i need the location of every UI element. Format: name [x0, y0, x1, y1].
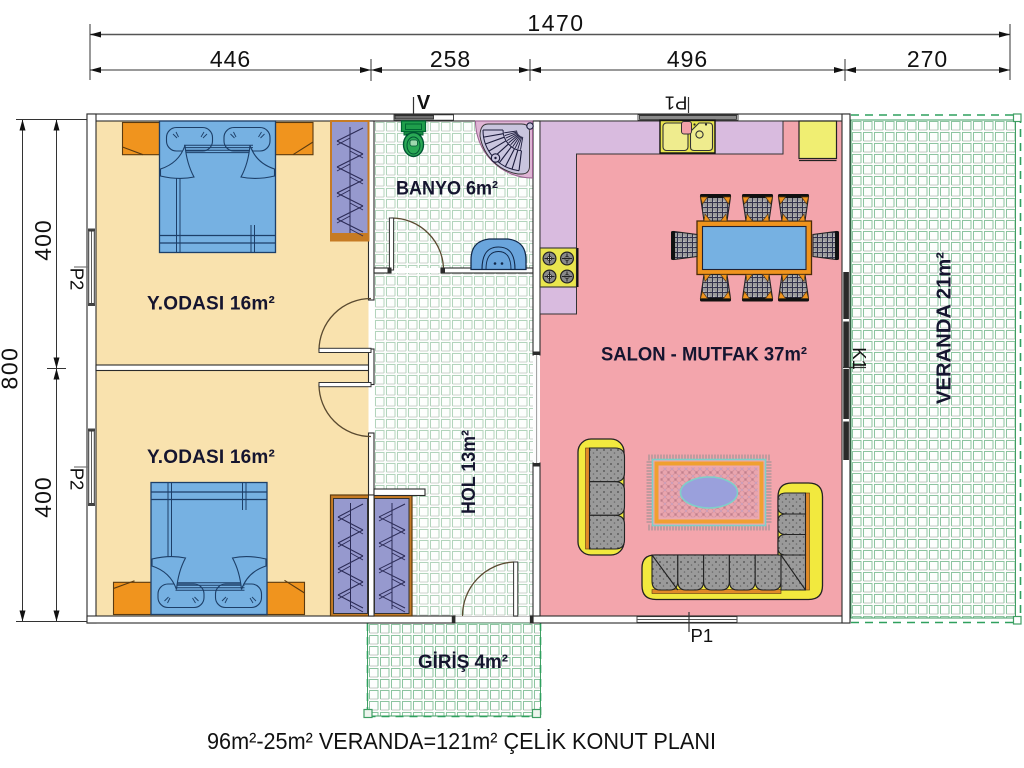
svg-text:GİRİŞ 4m²: GİRİŞ 4m² [418, 652, 508, 673]
svg-text:Y.ODASI 16m²: Y.ODASI 16m² [147, 294, 275, 315]
svg-text:1470: 1470 [527, 10, 584, 36]
svg-text:446: 446 [210, 46, 251, 72]
svg-text:K1: K1 [849, 347, 870, 370]
svg-text:SALON - MUTFAK 37m²: SALON - MUTFAK 37m² [601, 345, 807, 366]
svg-text:800: 800 [0, 347, 23, 390]
svg-text:Y.ODASI 16m²: Y.ODASI 16m² [147, 447, 275, 468]
svg-text:P1: P1 [665, 93, 688, 114]
svg-text:VERANDA 21m²: VERANDA 21m² [934, 252, 956, 404]
svg-text:496: 496 [667, 46, 708, 72]
svg-text:BANYO 6m²: BANYO 6m² [396, 179, 498, 200]
svg-text:P2: P2 [67, 268, 88, 291]
svg-text:V: V [417, 92, 431, 114]
svg-text:P2: P2 [67, 468, 88, 491]
svg-text:258: 258 [430, 46, 471, 72]
svg-text:96m²-25m² VERANDA=121m² ÇELİK: 96m²-25m² VERANDA=121m² ÇELİK KONUT PLAN… [207, 728, 716, 754]
svg-text:400: 400 [30, 219, 56, 260]
svg-text:270: 270 [907, 46, 948, 72]
svg-text:400: 400 [30, 476, 56, 517]
svg-text:P1: P1 [691, 625, 714, 646]
svg-text:HOL 13m²: HOL 13m² [459, 430, 480, 514]
